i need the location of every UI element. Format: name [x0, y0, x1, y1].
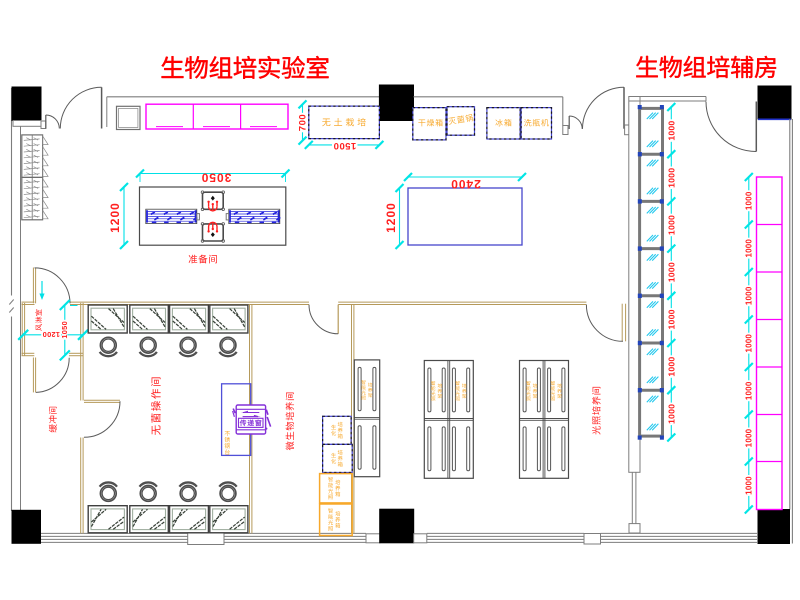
svg-text:1200: 1200	[108, 202, 122, 233]
svg-text:1200: 1200	[42, 330, 60, 339]
svg-text:2400: 2400	[450, 177, 481, 191]
svg-text:1000: 1000	[744, 334, 753, 353]
svg-text:700: 700	[298, 114, 309, 131]
svg-text:1000: 1000	[666, 309, 676, 329]
svg-text:1000: 1000	[666, 121, 676, 141]
svg-text:1000: 1000	[744, 286, 753, 305]
svg-text:1000: 1000	[666, 357, 676, 377]
svg-text:1500: 1500	[333, 140, 356, 151]
svg-text:1000: 1000	[666, 262, 676, 282]
svg-text:1000: 1000	[744, 381, 753, 400]
svg-text:1000: 1000	[744, 191, 753, 210]
svg-text:1000: 1000	[666, 404, 676, 424]
svg-text:1200: 1200	[384, 202, 398, 233]
svg-text:1000: 1000	[744, 239, 753, 258]
svg-text:1000: 1000	[666, 215, 676, 235]
svg-text:1000: 1000	[744, 476, 753, 495]
svg-text:1000: 1000	[744, 428, 753, 447]
svg-text:1000: 1000	[666, 168, 676, 188]
svg-text:3050: 3050	[201, 170, 232, 184]
svg-text:1050: 1050	[60, 321, 69, 339]
